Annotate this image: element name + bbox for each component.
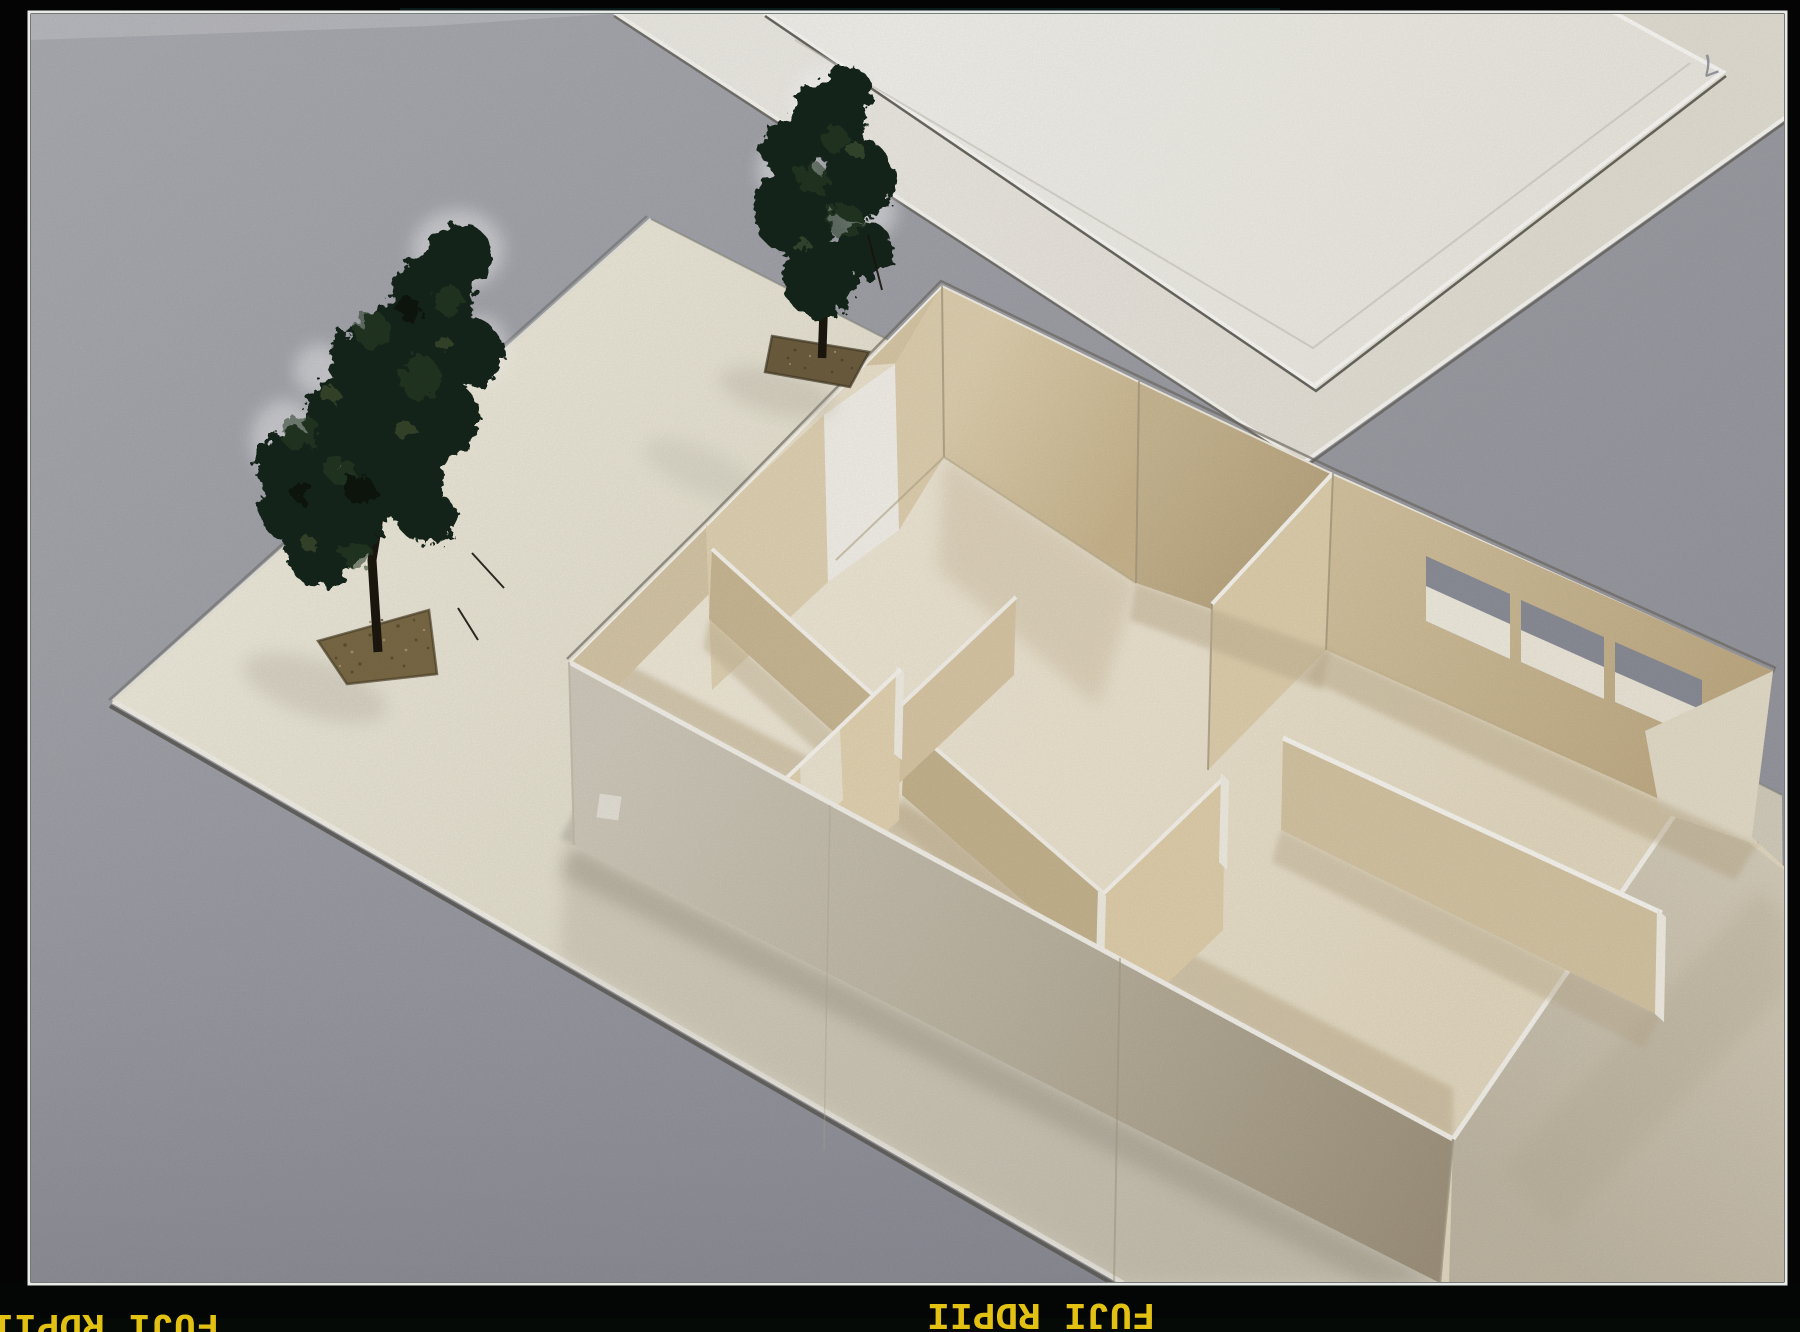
svg-text:FUJI RDPII: FUJI RDPII bbox=[927, 1292, 1155, 1332]
svg-text:FUJI RDPII: FUJI RDPII bbox=[0, 1303, 219, 1332]
